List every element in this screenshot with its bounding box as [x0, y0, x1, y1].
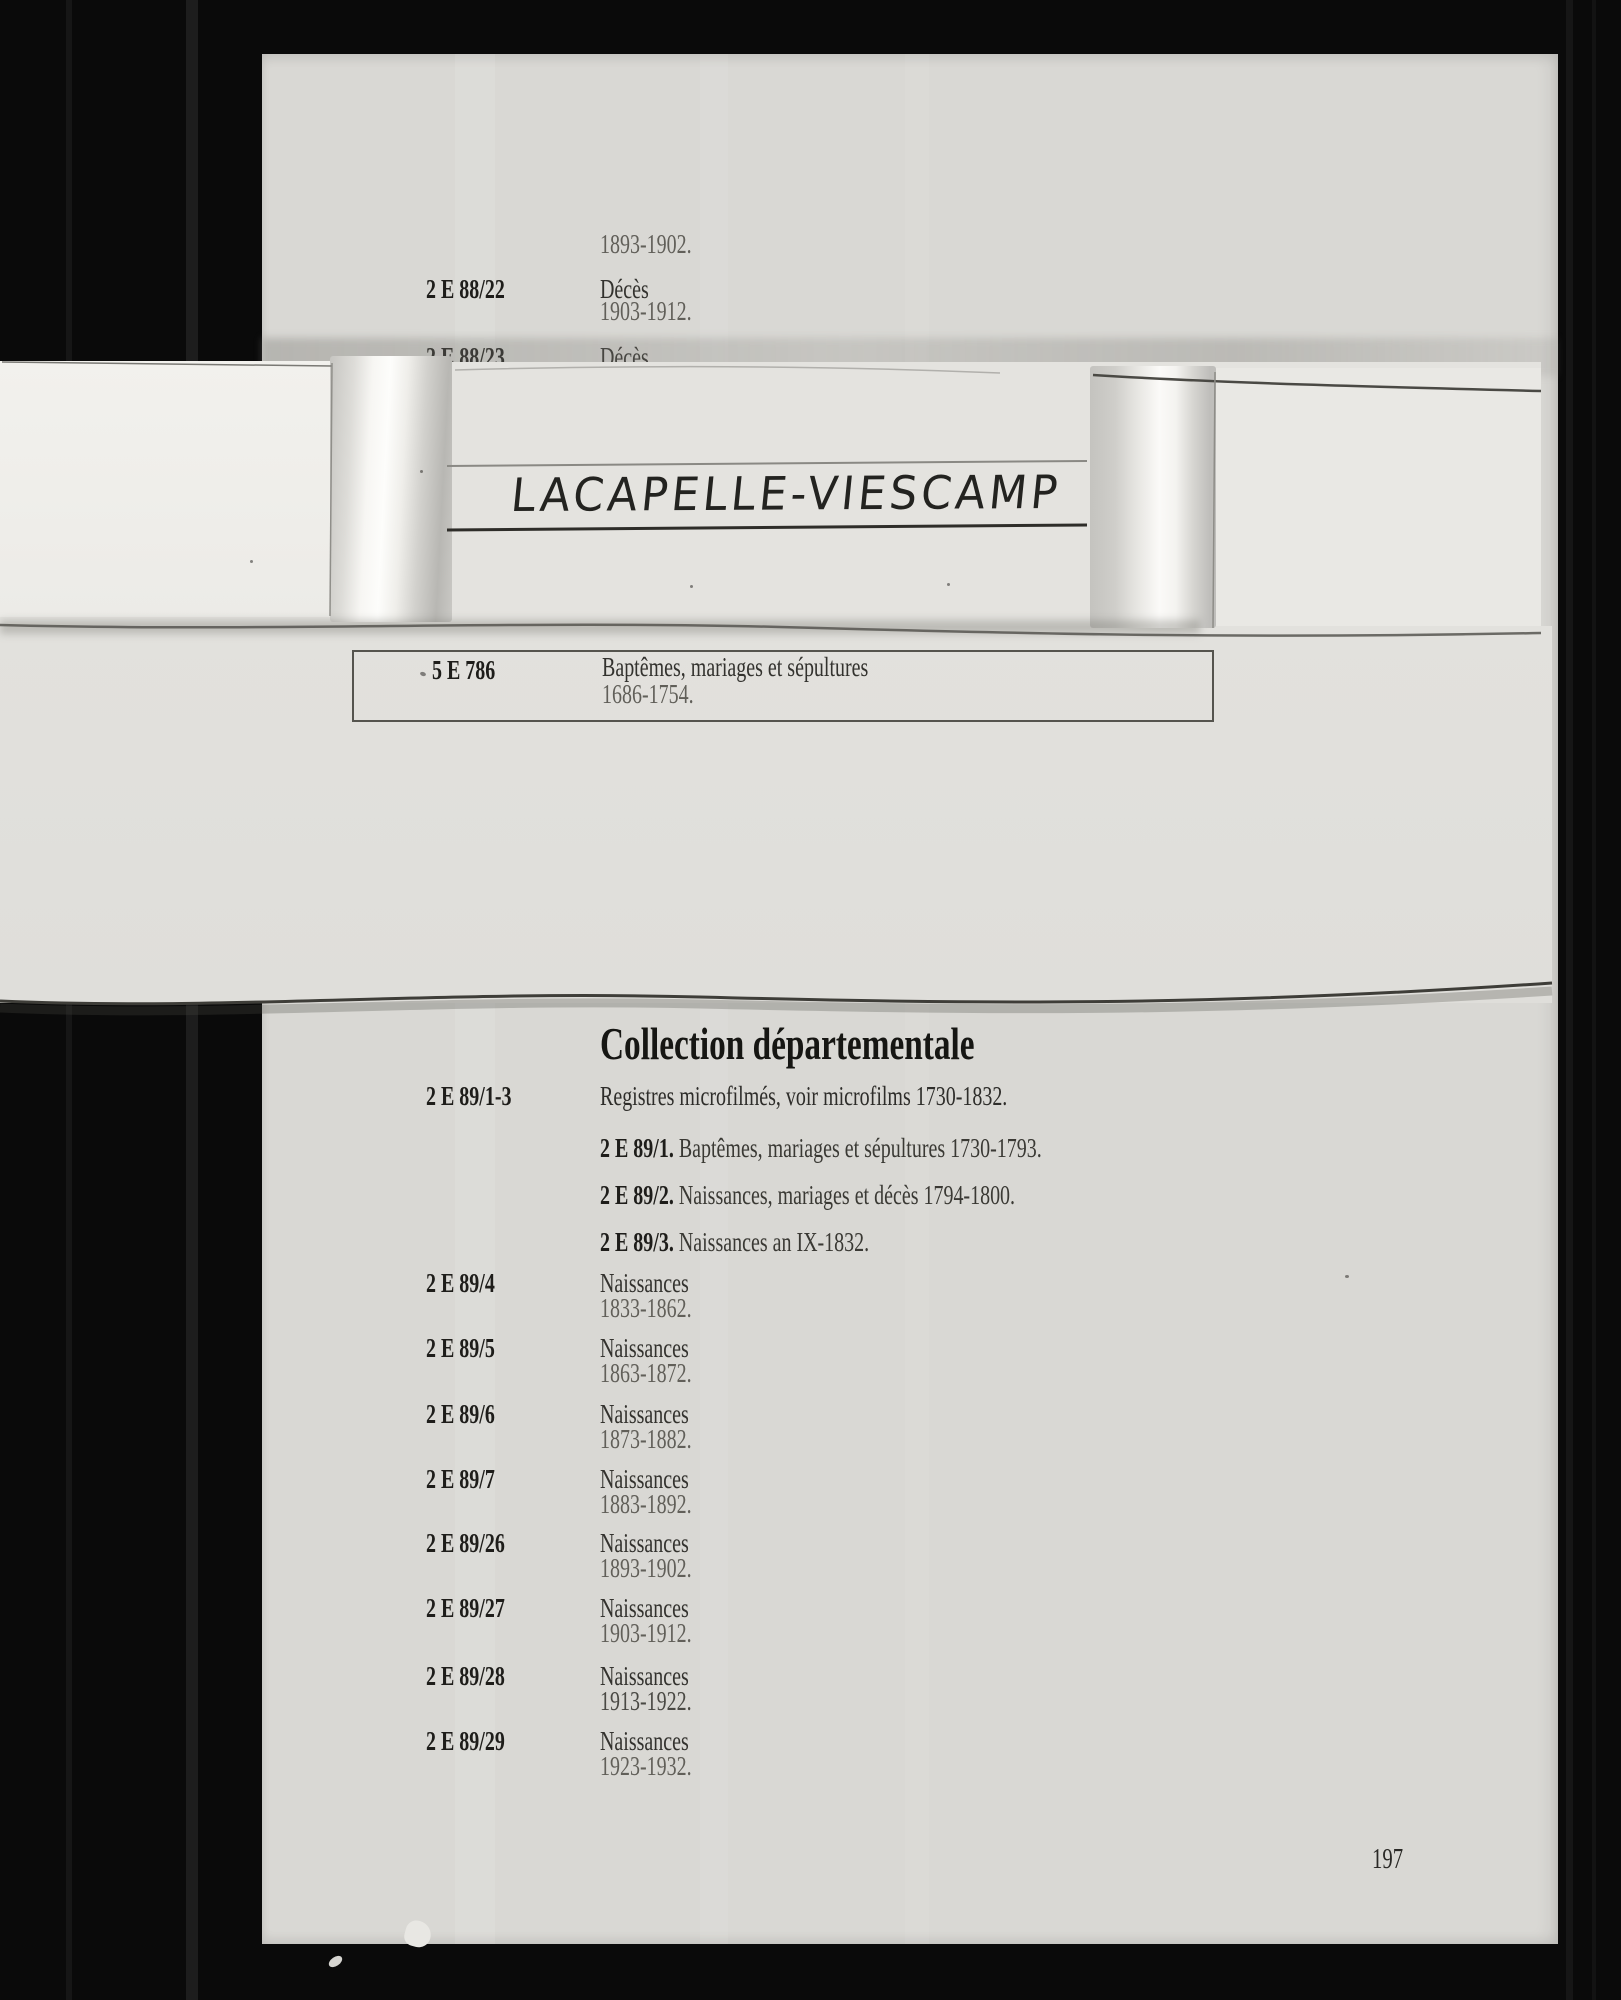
entry-dates: 1923-1932.: [600, 1753, 692, 1780]
entry-code: 2 E 89/2.: [600, 1180, 674, 1210]
entry-dates: 1873-1882.: [600, 1426, 692, 1453]
entry-dates: 1833-1862.: [600, 1295, 692, 1322]
entry-code: 2 E 89/26: [426, 1530, 505, 1557]
entry-dates: 1863-1872.: [600, 1360, 692, 1387]
dust-spot: [947, 583, 950, 586]
entry-dates: 1686-1754.: [602, 681, 694, 708]
entry-code: 2 E 89/29: [426, 1728, 505, 1755]
dust-spot: [250, 560, 253, 563]
entry-code: 2 E 89/27: [426, 1595, 505, 1622]
entry-code: 2 E 89/5: [426, 1335, 495, 1362]
entry-label: Baptêmes, mariages et sépultures 1730-17…: [679, 1133, 1042, 1163]
microfilm-item: 2 E 89/2. Naissances, mariages et décès …: [600, 1182, 1015, 1209]
entry-code: 2 E 89/1-3: [426, 1083, 511, 1110]
entry-code: 2 E 89/7: [426, 1466, 495, 1493]
entry-dates: 1913-1922.: [600, 1688, 692, 1715]
entry-dates: 1903-1912.: [600, 1620, 692, 1647]
section-heading: Collection départementale: [600, 1022, 975, 1067]
entry-code: 2 E 89/1.: [600, 1133, 674, 1163]
entry-label: Naissances, mariages et décès 1794-1800.: [679, 1180, 1015, 1210]
dust-spot: [420, 470, 423, 473]
dust-spot: [1345, 1275, 1349, 1278]
scan-edge-lines: [0, 0, 1621, 2000]
entry-code: 2 E 89/4: [426, 1270, 495, 1297]
entry-code: 5 E 786: [432, 657, 495, 684]
entry-dates: 1893-1902.: [600, 1555, 692, 1582]
entry-label: Naissances an IX-1832.: [679, 1227, 869, 1257]
page-number: 197: [1372, 1846, 1403, 1874]
spine-label-title: LACAPELLE-VIESCAMP: [509, 465, 1064, 522]
entry-code: 2 E 89/28: [426, 1663, 505, 1690]
entry-code: 2 E 89/6: [426, 1401, 495, 1428]
entry-code: 2 E 89/3.: [600, 1227, 674, 1257]
entry-dates: 1883-1892.: [600, 1491, 692, 1518]
entry-label: Registres microfilmés, voir microfilms 1…: [600, 1083, 1007, 1110]
entry-label: Baptêmes, mariages et sépultures: [602, 654, 868, 681]
microfilm-item: 2 E 89/3. Naissances an IX-1832.: [600, 1229, 869, 1256]
dust-spot: [690, 585, 693, 588]
microfilm-item: 2 E 89/1. Baptêmes, mariages et sépultur…: [600, 1135, 1042, 1162]
scanned-document: 1893-1902. 2 E 88/22 Décès 1903-1912. 2 …: [0, 0, 1621, 2000]
